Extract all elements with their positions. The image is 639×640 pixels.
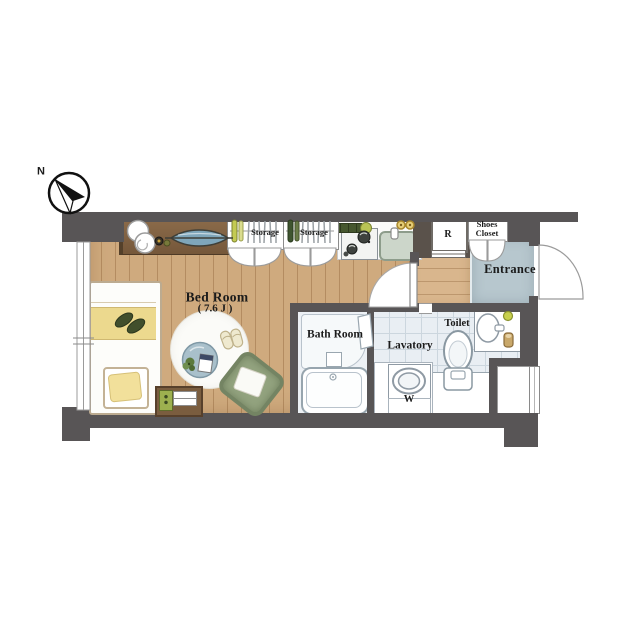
lavatory-label: Lavatory bbox=[387, 340, 432, 352]
floor-plan: N Bed Room ( 7.6 J ) Storage Storage R S… bbox=[0, 0, 639, 640]
vector-detail-layer bbox=[0, 0, 639, 640]
table-book bbox=[198, 354, 213, 373]
shoes-closet-bifold-doors bbox=[469, 240, 505, 261]
slippers bbox=[219, 328, 243, 350]
shoes-closet-label-line2: Closet bbox=[476, 229, 499, 238]
storage-right-label: Storage bbox=[300, 228, 328, 237]
counter-stools bbox=[128, 221, 156, 254]
bedroom-size-label: ( 7.6 J ) bbox=[198, 304, 233, 315]
storage-right-bifold-doors bbox=[284, 248, 336, 266]
stove-knobs bbox=[397, 221, 414, 229]
bathroom-label: Bath Room bbox=[307, 329, 363, 341]
kitchen-faucet bbox=[391, 228, 398, 239]
toilet-label: Toilet bbox=[444, 319, 469, 330]
counter-decor-tray bbox=[165, 230, 233, 246]
bedroom-window bbox=[73, 242, 94, 410]
refrigerator-label: R bbox=[444, 230, 451, 240]
entrance-label: Entrance bbox=[484, 263, 536, 276]
bedroom-door-swing bbox=[369, 263, 417, 307]
stove-burners bbox=[344, 231, 371, 257]
washing-machine-label: W bbox=[404, 395, 415, 406]
north-compass-icon bbox=[49, 173, 89, 213]
storage-left-bifold-doors bbox=[228, 248, 281, 266]
bed-blanket-slippers bbox=[113, 310, 147, 336]
toilet-hand-sink bbox=[477, 312, 513, 348]
entry-door-swing bbox=[539, 245, 583, 299]
storage-left-label: Storage bbox=[251, 228, 279, 237]
north-label: N bbox=[37, 167, 45, 178]
toilet-bowl bbox=[444, 331, 472, 390]
washing-machine-drum bbox=[393, 369, 425, 394]
bathtub-drain bbox=[330, 374, 336, 380]
